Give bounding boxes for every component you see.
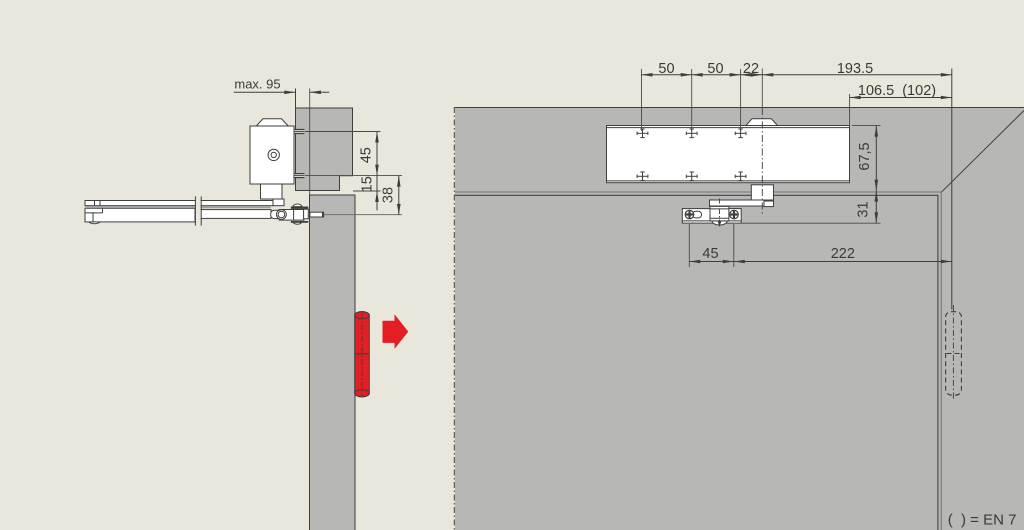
- svg-text:67,5: 67,5: [857, 142, 873, 170]
- svg-text:50: 50: [707, 61, 723, 77]
- svg-text:45: 45: [359, 147, 375, 163]
- svg-text:22: 22: [743, 61, 759, 77]
- svg-text:15: 15: [360, 176, 376, 192]
- svg-text:106.5 (102): 106.5 (102): [858, 83, 936, 99]
- svg-text:50: 50: [658, 61, 674, 77]
- svg-text:222: 222: [831, 246, 855, 262]
- svg-text:31: 31: [856, 201, 872, 217]
- svg-text:193.5: 193.5: [837, 61, 873, 77]
- svg-text:45: 45: [702, 246, 718, 262]
- svg-text:max. 95: max. 95: [234, 77, 280, 92]
- svg-text:( ) = EN 7: ( ) = EN 7: [948, 512, 1017, 529]
- svg-text:38: 38: [381, 187, 397, 203]
